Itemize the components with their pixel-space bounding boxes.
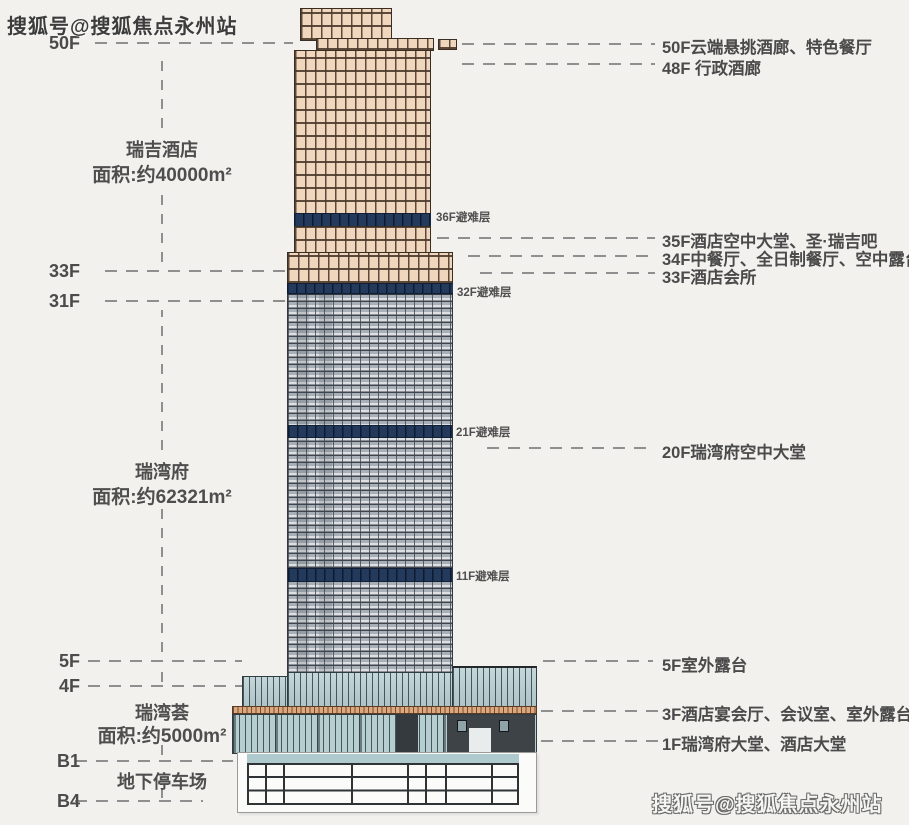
leader-50f-right (462, 43, 655, 45)
podium-dark-storefront (447, 715, 535, 755)
refuge-band-11f (288, 568, 452, 582)
podium-entrance-door (469, 728, 491, 755)
leader-34f-right (468, 255, 655, 257)
podium-mullion-cluster (396, 715, 418, 755)
section-name-residence: 瑞湾府 (52, 458, 272, 484)
floor-mark-4f: 4F (28, 676, 80, 697)
annotation-1f: 1F瑞湾府大堂、酒店大堂 (662, 731, 846, 755)
facade-core-strip (319, 295, 332, 673)
watermark-top-left: 搜狐号@搜狐焦点永州站 (7, 10, 238, 39)
basement-column-line (425, 765, 427, 803)
basement-column-line (407, 765, 409, 803)
section-area-residence: 面积:约62321m² (42, 482, 282, 509)
leader-20f-right (487, 447, 650, 449)
floor-mark-5f: 5F (28, 651, 80, 672)
elevation-diagram: 50F 33F 31F 5F 4F B1 B4 瑞吉酒店 面积:约40000m²… (0, 0, 909, 825)
level-axis-line (161, 55, 163, 128)
hotel-tower-lower (294, 226, 431, 255)
watermark-bottom-right: 搜狐号@搜狐焦点永州站 (652, 788, 883, 817)
basement-structure (237, 752, 537, 813)
section-area-hotel: 面积:约40000m² (42, 160, 282, 187)
sky-lobby-block (287, 252, 453, 284)
section-name-hotel: 瑞吉酒店 (52, 136, 272, 162)
podium-window (457, 720, 467, 732)
leader-48f-right (462, 63, 655, 65)
leader-b1-left (75, 760, 233, 762)
basement-column-line (491, 765, 493, 803)
podium-window (499, 720, 509, 732)
annotation-5f: 5F室外露台 (662, 652, 747, 676)
basement-grid (247, 763, 519, 805)
floor-mark-33f: 33F (28, 261, 80, 282)
leader-33f-right (480, 272, 655, 274)
leader-1f-right (541, 740, 658, 742)
leader-35f-right (437, 237, 655, 239)
floor-mark-b4: B4 (28, 791, 80, 812)
refuge-band-32f (287, 283, 453, 294)
annotation-33f: 33F酒店会所 (662, 264, 756, 288)
refuge-label-36f: 36F避难层 (436, 209, 490, 225)
refuge-band-36f (294, 213, 431, 227)
leader-b4-left (75, 800, 203, 802)
annotation-3f: 3F酒店宴会厅、会议室、室外露台 (662, 701, 909, 725)
annotation-20f: 20F瑞湾府空中大堂 (662, 439, 806, 463)
level-axis-line (161, 668, 163, 682)
leader-3f-right (541, 710, 658, 712)
podium-upper-glass (287, 672, 453, 708)
facade-core-strip (296, 295, 309, 673)
podium-upper-right-wing (452, 666, 537, 708)
annotation-48f: 48F 行政酒廊 (662, 55, 761, 79)
leader-4f-left (88, 685, 242, 687)
leader-5f-right (543, 660, 653, 662)
basement-column-line (445, 765, 447, 803)
refuge-label-32f: 32F避难层 (457, 284, 511, 300)
leader-33f-left (105, 270, 287, 272)
section-area-podium: 面积:约5000m² (42, 721, 282, 748)
hotel-tower-facade (294, 50, 431, 216)
level-axis-line (161, 188, 163, 262)
leader-50f-left (95, 42, 293, 44)
cantilever-50f-tip (438, 39, 457, 50)
basement-column-line (351, 765, 353, 803)
floor-mark-31f: 31F (28, 291, 80, 312)
refuge-band-21f (288, 425, 452, 438)
tower-crown (300, 8, 392, 41)
basement-column-line (283, 765, 285, 803)
refuge-label-11f: 11F避难层 (456, 568, 510, 584)
leader-5f-left (88, 660, 242, 662)
basement-parking-label: 地下停车场 (52, 768, 272, 794)
level-axis-line (161, 502, 163, 652)
residence-tower-facade (287, 294, 453, 674)
podium-fascia-band (232, 706, 537, 714)
leader-31f-left (105, 300, 287, 302)
refuge-label-21f: 21F避难层 (456, 424, 510, 440)
level-axis-line (161, 310, 163, 450)
